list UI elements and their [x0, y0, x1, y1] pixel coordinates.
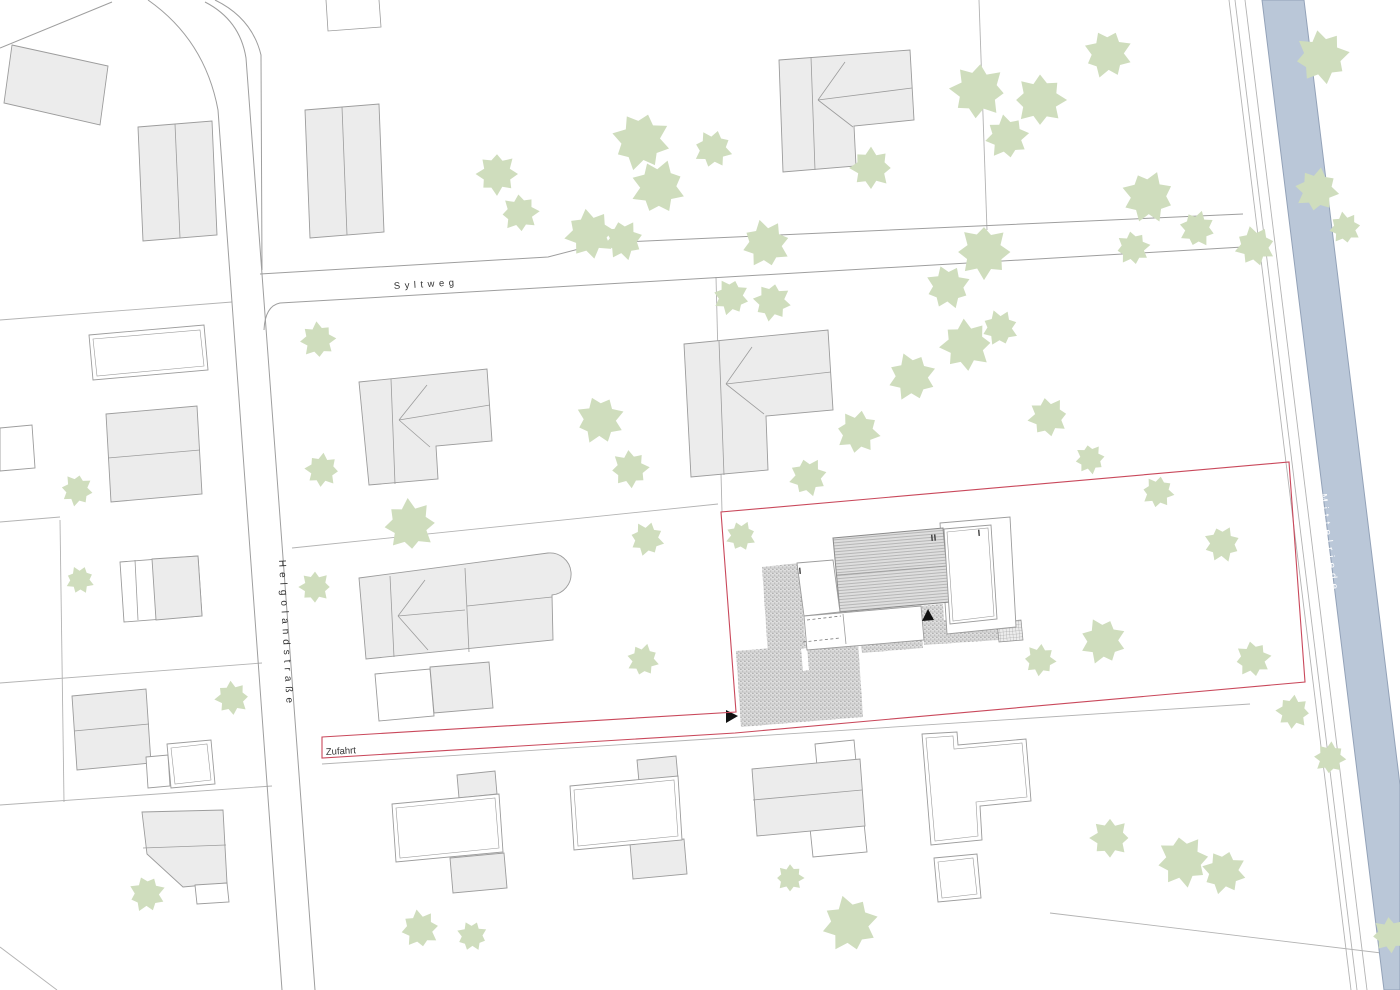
tree	[1313, 740, 1348, 774]
tree	[492, 187, 546, 240]
street-label-helgolandstrasse: Helgolandstraße	[276, 560, 295, 709]
tree	[298, 320, 337, 359]
tree	[61, 561, 98, 598]
tree	[1146, 824, 1218, 897]
tree	[303, 451, 340, 488]
tree	[826, 402, 887, 463]
tree	[293, 564, 338, 609]
tree	[1135, 470, 1179, 515]
tree	[1196, 846, 1250, 900]
site-plan-svg: Syltweg Helgolandstraße Zufahrt Mittelri…	[0, 0, 1400, 990]
tree	[611, 448, 652, 490]
tree	[476, 154, 518, 196]
building-footprint	[167, 740, 215, 788]
water-body	[1262, 0, 1400, 990]
building-footprint	[430, 662, 493, 713]
tree	[706, 272, 755, 321]
storey-label-two: II	[930, 533, 937, 543]
tree	[122, 871, 170, 919]
tree	[453, 916, 493, 956]
tree	[627, 518, 668, 560]
building-footprint	[4, 45, 108, 125]
tree	[1227, 635, 1277, 685]
tree	[1230, 221, 1279, 270]
tree	[721, 516, 761, 556]
building-footprint	[195, 883, 229, 904]
tree	[1076, 24, 1138, 85]
tree	[734, 212, 799, 278]
tree	[981, 111, 1032, 162]
tree	[567, 389, 631, 453]
tree	[686, 123, 738, 175]
building-hip-roof	[684, 330, 833, 477]
building-footprint	[72, 689, 151, 770]
tree	[54, 467, 99, 511]
tree	[1021, 388, 1077, 444]
paving-courtyard	[736, 641, 863, 727]
street-edge	[0, 2, 112, 48]
tree	[937, 316, 993, 373]
site-plan: Syltweg Helgolandstraße Zufahrt Mittelri…	[0, 0, 1400, 990]
project-site	[726, 517, 1023, 727]
water-channel	[1262, 0, 1400, 990]
building-footprint	[922, 732, 1031, 845]
building-footprint	[326, 0, 381, 31]
building-footprint	[570, 776, 682, 850]
tree	[1072, 609, 1133, 670]
building-footprint	[392, 794, 503, 862]
tree	[1069, 438, 1111, 480]
building-footprint	[934, 854, 981, 902]
existing-buildings	[0, 0, 1031, 904]
building-wing-west	[797, 560, 840, 616]
tree	[624, 640, 663, 679]
tree	[394, 903, 447, 956]
tree	[213, 679, 250, 716]
street-edge	[215, 0, 262, 270]
building-footprint	[457, 771, 497, 798]
trees	[54, 24, 1400, 956]
tree	[749, 281, 793, 325]
building-footprint	[146, 755, 170, 788]
tree	[374, 489, 447, 562]
access-label-zufahrt: Zufahrt	[326, 745, 357, 758]
tree	[785, 455, 832, 501]
tree	[1024, 643, 1058, 678]
tree	[1274, 693, 1311, 730]
tree	[1109, 225, 1156, 272]
building-footprint	[375, 669, 434, 721]
tree	[881, 345, 943, 406]
tree	[940, 51, 1019, 130]
tree	[770, 859, 810, 899]
building-footprint	[89, 325, 208, 380]
building-gable-roof	[752, 759, 865, 836]
building-hip-roof	[779, 50, 914, 172]
tree	[1197, 519, 1245, 567]
tree	[1173, 205, 1222, 254]
tree	[1083, 809, 1140, 866]
building-footprint	[142, 810, 227, 887]
street-label-syltweg: Syltweg	[394, 277, 459, 292]
tree	[815, 888, 884, 956]
building-footprint	[0, 425, 35, 471]
